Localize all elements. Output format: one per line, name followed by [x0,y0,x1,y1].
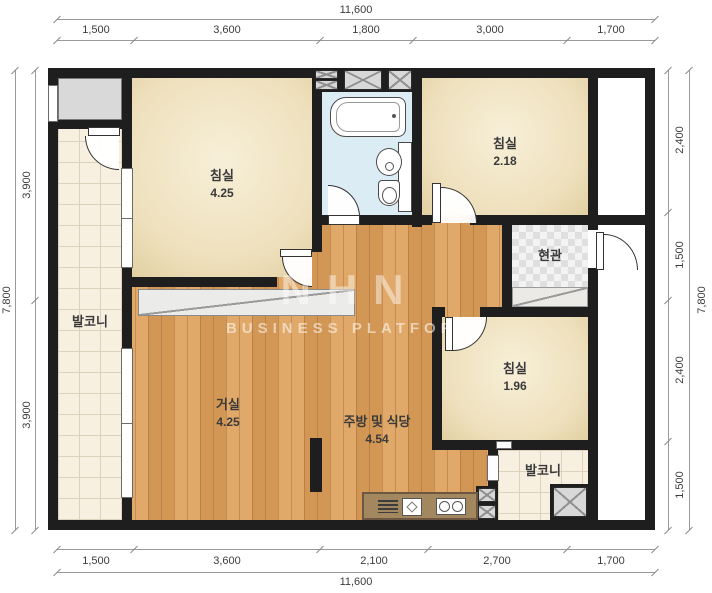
stove-icon [436,498,466,515]
dim-left-seg: 3,900 [21,401,33,429]
entrance-door-arc [604,234,638,270]
room-label-kitchen: 주방 및 식당 4.54 [307,403,447,457]
kitchen-counter [362,492,478,520]
bedroom3-door-leaf [445,317,453,351]
burner-icon [452,501,463,512]
wall-bedroom2-bottom [422,215,432,225]
wall-outer-left [48,68,58,530]
bathtub-inner [336,102,400,132]
room-label-living: 거실 4.25 [158,386,298,440]
wardrobe-cabinet [138,289,355,316]
duct-shaft-icon [388,70,412,90]
dim-top-seg: 1,800 [352,24,380,36]
bathtub-icon [330,97,406,137]
dim-right-seg: 2,400 [674,126,686,154]
room-label-balcony-right: 발코니 [498,457,588,485]
wall-bedroom1-bottom [132,277,277,287]
wall-bedroom3-bottom [432,440,598,450]
wall-bathroom-right [412,68,422,227]
duct-shaft-icon [478,505,496,519]
dim-left-seg: 3,900 [21,171,33,199]
room-name: 발코니 [525,462,561,480]
dim-bottom-seg: 2,100 [360,555,388,567]
room-name: 침실 [210,167,234,185]
floorplan: 침실 4.25 침실 2.18 침실 1.96 거실 4.25 주방 및 식당 … [48,68,655,530]
bathtub-drain-icon [392,114,396,118]
dim-top-seg: 1,500 [82,24,110,36]
sink-drain [406,501,417,512]
entrance-door-leaf [596,232,604,270]
dim-line [57,572,655,573]
room-label-bedroom2: 침실 2.18 [422,124,588,180]
room-name: 거실 [216,396,240,414]
room-label-bedroom3: 침실 1.96 [442,349,588,405]
bathroom-counter [398,142,412,212]
duct-shaft-icon [315,80,338,90]
shoe-cabinet [512,287,588,307]
window-mullion [122,218,132,219]
wall-outer-bottom [48,520,655,530]
toilet-icon [378,180,400,206]
bedroom2-door-leaf [432,183,441,223]
dim-top-total: 11,600 [340,4,373,16]
window-mullion [122,423,132,424]
room-area: 4.25 [216,414,239,430]
bathroom-door-leaf [328,215,360,225]
wall-bedroom2-bottom [470,215,646,225]
dim-bottom-seg: 1,500 [82,555,110,567]
wall-outer-right [645,68,655,530]
window-balcony-living [121,348,133,498]
dim-left-total: 7,800 [1,286,13,314]
dim-top-seg: 3,000 [476,24,504,36]
dim-right-seg: 2,400 [674,356,686,384]
sink-icon [376,148,402,176]
room-label-bedroom1: 침실 4.25 [132,156,312,212]
kitchen-sink-icon [402,498,422,516]
wall-bedroom3-top [480,307,598,317]
dim-right-seg: 1,500 [674,241,686,269]
window-outer-left [48,85,58,122]
duct-shaft-icon [478,488,496,502]
wall-entrance-left [502,215,512,317]
room-area: 1.96 [503,378,526,394]
room-name: 주방 및 식당 [343,413,410,431]
duct-shaft-icon [315,70,338,79]
burner-icon [439,501,450,512]
wall-unit-right-lower [588,268,598,520]
room-name: 침실 [493,135,517,153]
room-name: 발코니 [72,313,108,331]
dim-bottom-seg: 2,700 [483,555,511,567]
wall-bathroom-bottom [312,215,328,225]
dim-bottom-seg: 3,600 [213,555,241,567]
window-bedroom3-balcony [496,441,512,449]
wall-unit-right-upper [588,68,598,230]
room-label-entrance: 현관 [512,225,588,287]
bedroom1-door-leaf [280,249,312,257]
dim-bottom-total: 11,600 [340,576,373,588]
toilet-bowl [382,187,397,204]
dim-top-seg: 3,600 [213,24,241,36]
balcony-door-leaf [88,127,120,136]
room-name: 현관 [538,247,562,265]
duct-shaft-icon [553,487,587,517]
vent-icon [378,500,398,513]
room-label-balcony-left: 발코니 [58,308,122,336]
room-area: 4.25 [210,185,233,201]
balcony-storage-closet [58,78,122,120]
room-area: 4.54 [365,431,388,447]
dim-right-total: 7,800 [696,286,708,314]
dim-line [57,19,655,20]
room-name: 침실 [503,360,527,378]
sink-drain [385,162,394,171]
dim-line [689,70,690,530]
dim-bottom-seg: 1,700 [597,555,625,567]
dim-line [15,70,16,530]
room-area: 2.18 [493,153,516,169]
duct-shaft-icon [344,70,382,90]
dim-top-seg: 1,700 [597,24,625,36]
floorplan-canvas: 11,600 1,500 3,600 1,800 3,000 1,700 1,5… [0,0,712,593]
dim-right-seg: 1,500 [674,471,686,499]
